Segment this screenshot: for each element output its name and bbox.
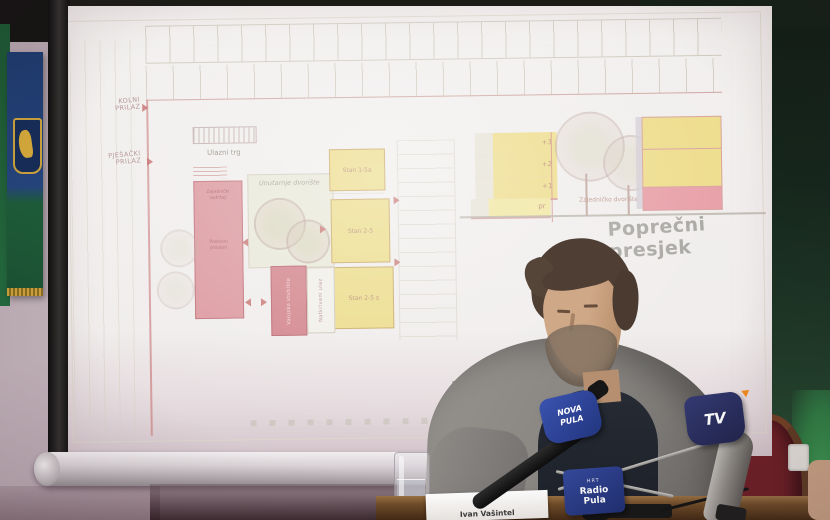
mic-flag-tv: TV (683, 391, 747, 448)
speaker-head (521, 233, 651, 406)
speaker-hair-side (611, 270, 640, 331)
mic-flag-radio-pula: HRT Radio Pula (562, 466, 625, 516)
speaker-eye (584, 304, 598, 307)
press-conference-photo: KOLNI PRILAZ PJEŠAČKI PRILAZ Ulazni trg … (0, 0, 830, 520)
tv-logo: TV (703, 409, 727, 430)
name-plate-text: Ivan Vašintel (460, 508, 515, 519)
person-arm-edge (808, 460, 830, 520)
speaker-eye (557, 310, 570, 314)
